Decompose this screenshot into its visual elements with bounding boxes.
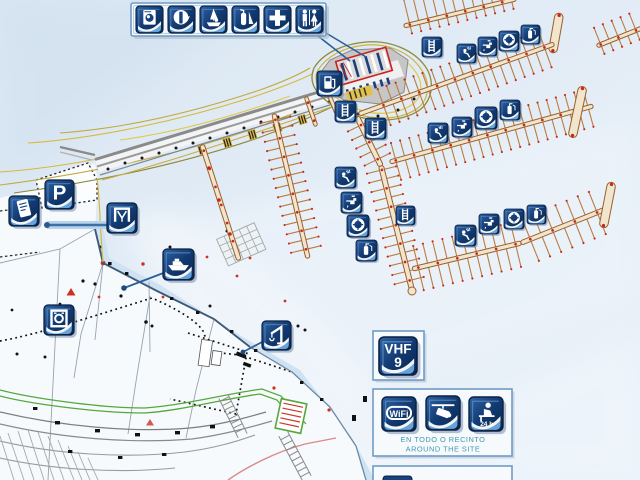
svg-text:EN TODO O RECINTO: EN TODO O RECINTO bbox=[401, 435, 486, 444]
svg-text:AROUND THE SITE: AROUND THE SITE bbox=[406, 445, 481, 454]
